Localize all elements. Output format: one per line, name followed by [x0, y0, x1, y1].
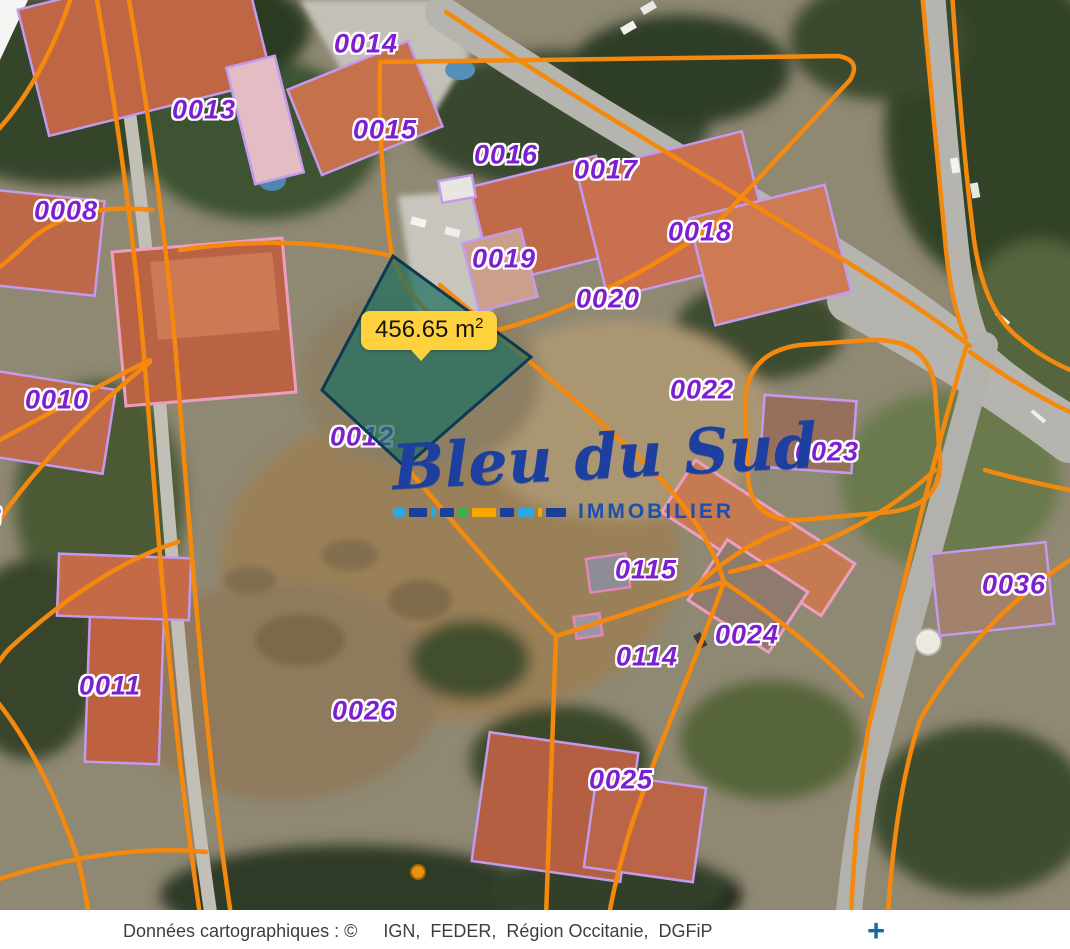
area-tooltip: 456.65 m2: [361, 311, 497, 350]
selected-parcel[interactable]: [322, 256, 531, 467]
map-widget: 0014001300150016001700080018001900200010…: [0, 0, 1070, 949]
cadastral-map[interactable]: 0014001300150016001700080018001900200010…: [0, 0, 1070, 910]
area-superscript: 2: [475, 315, 483, 332]
zoom-in-button[interactable]: +: [858, 914, 894, 948]
attribution-text: Données cartographiques : ©IGN, FEDER, R…: [123, 921, 713, 942]
attribution-prefix: Données cartographiques : ©: [123, 921, 357, 941]
area-value: 456.65 m: [375, 316, 475, 343]
attribution-sources: IGN, FEDER, Région Occitanie, DGFiP: [383, 921, 712, 941]
attribution-bar: Données cartographiques : ©IGN, FEDER, R…: [0, 910, 1070, 949]
